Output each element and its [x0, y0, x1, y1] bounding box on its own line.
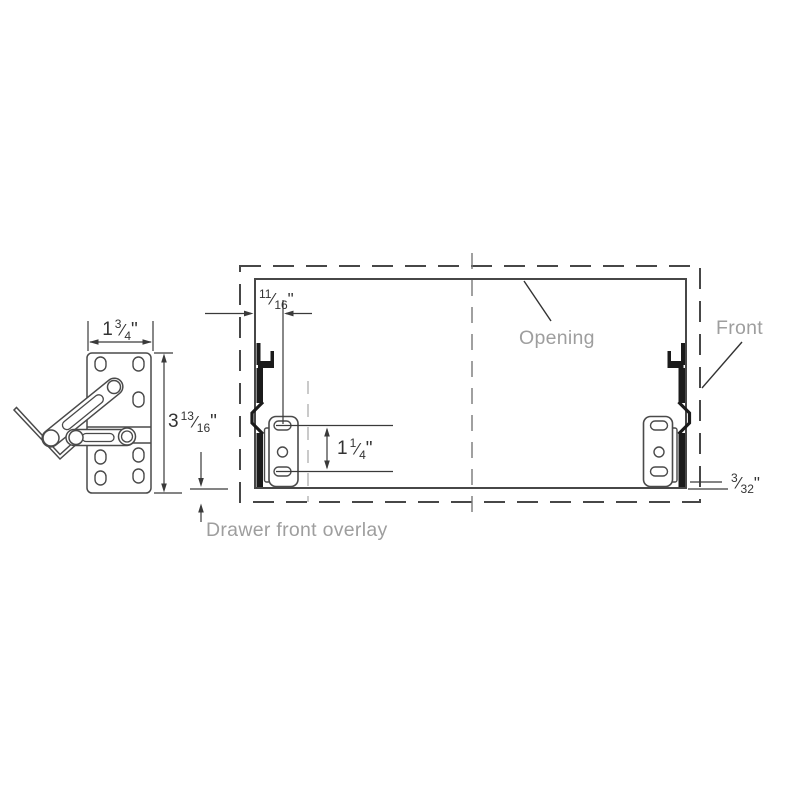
- opening-label: Opening: [519, 327, 595, 350]
- diagram-linework: [0, 0, 800, 800]
- front-label: Front: [716, 317, 763, 340]
- drawer-slide-installation-diagram: 13⁄4" 313⁄16" 11⁄16" 11⁄4" 3⁄32" Opening…: [0, 0, 800, 800]
- opening-outline: [255, 279, 686, 488]
- link-rivet-right-inner: [122, 431, 133, 442]
- bracket-side-view: [14, 353, 151, 493]
- dim-unit: ": [754, 474, 760, 493]
- opening-leader-line: [524, 281, 551, 321]
- dim-numerator: 3: [731, 471, 738, 485]
- dim-bottom-gap-lines: [688, 482, 728, 489]
- dim-whole: 3: [168, 411, 179, 432]
- drawer-front-overlay-label: Drawer front overlay: [206, 519, 388, 542]
- dim-hole-spacing: 11⁄4": [337, 436, 373, 462]
- dim-edge-to-holes: 11⁄16": [259, 287, 294, 312]
- dim-numerator: 11: [259, 287, 271, 301]
- right-mounting-bracket: [644, 417, 678, 487]
- dim-denominator: 16: [197, 421, 210, 435]
- dim-whole: 1: [337, 438, 348, 459]
- dim-unit: ": [288, 290, 294, 309]
- dim-overlay-arrows: [198, 478, 204, 513]
- pivot-rivet: [43, 430, 59, 446]
- dim-unit: ": [210, 411, 217, 432]
- dim-bracket-width: 13⁄4": [84, 317, 156, 343]
- dim-denominator: 32: [741, 482, 754, 496]
- front-leader-line: [702, 342, 742, 388]
- dim-bottom-gap: 3⁄32": [731, 471, 760, 496]
- dim-unit: ": [366, 438, 373, 459]
- dim-bracket-height: 313⁄16": [168, 409, 217, 435]
- dim-whole: 1: [102, 319, 113, 340]
- link-rivet-left: [69, 431, 83, 445]
- left-mounting-bracket: [265, 417, 299, 487]
- dim-denominator: 16: [274, 298, 287, 312]
- dim-numerator: 13: [181, 409, 194, 423]
- dim-unit: ": [131, 319, 138, 340]
- dim-overlay-lines: [190, 452, 228, 522]
- arm-hole: [108, 381, 121, 394]
- drawer-front-outline-dashed: [240, 266, 700, 502]
- dim-denominator: 4: [124, 329, 131, 343]
- dim-denominator: 4: [359, 448, 366, 462]
